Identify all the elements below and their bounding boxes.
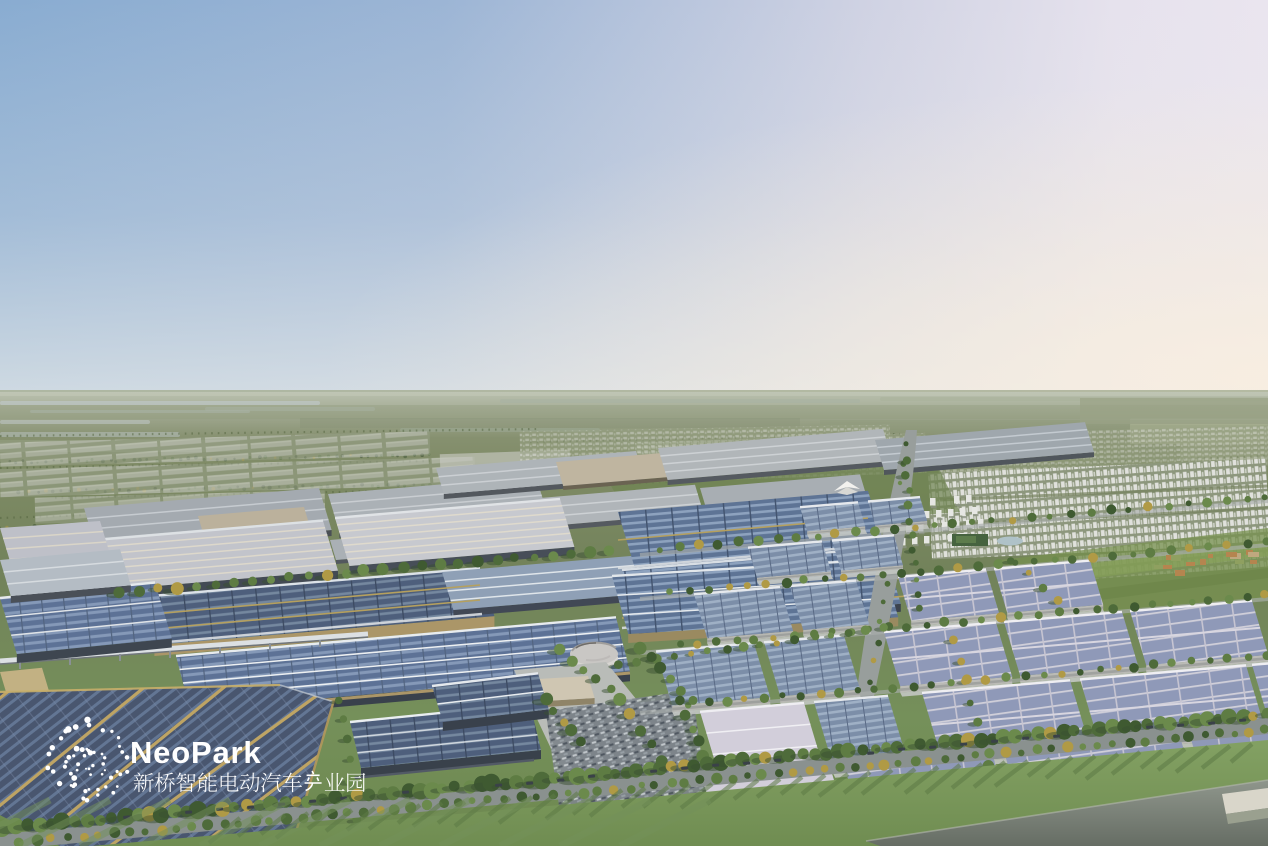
svg-text:NeoPark: NeoPark (130, 735, 261, 770)
